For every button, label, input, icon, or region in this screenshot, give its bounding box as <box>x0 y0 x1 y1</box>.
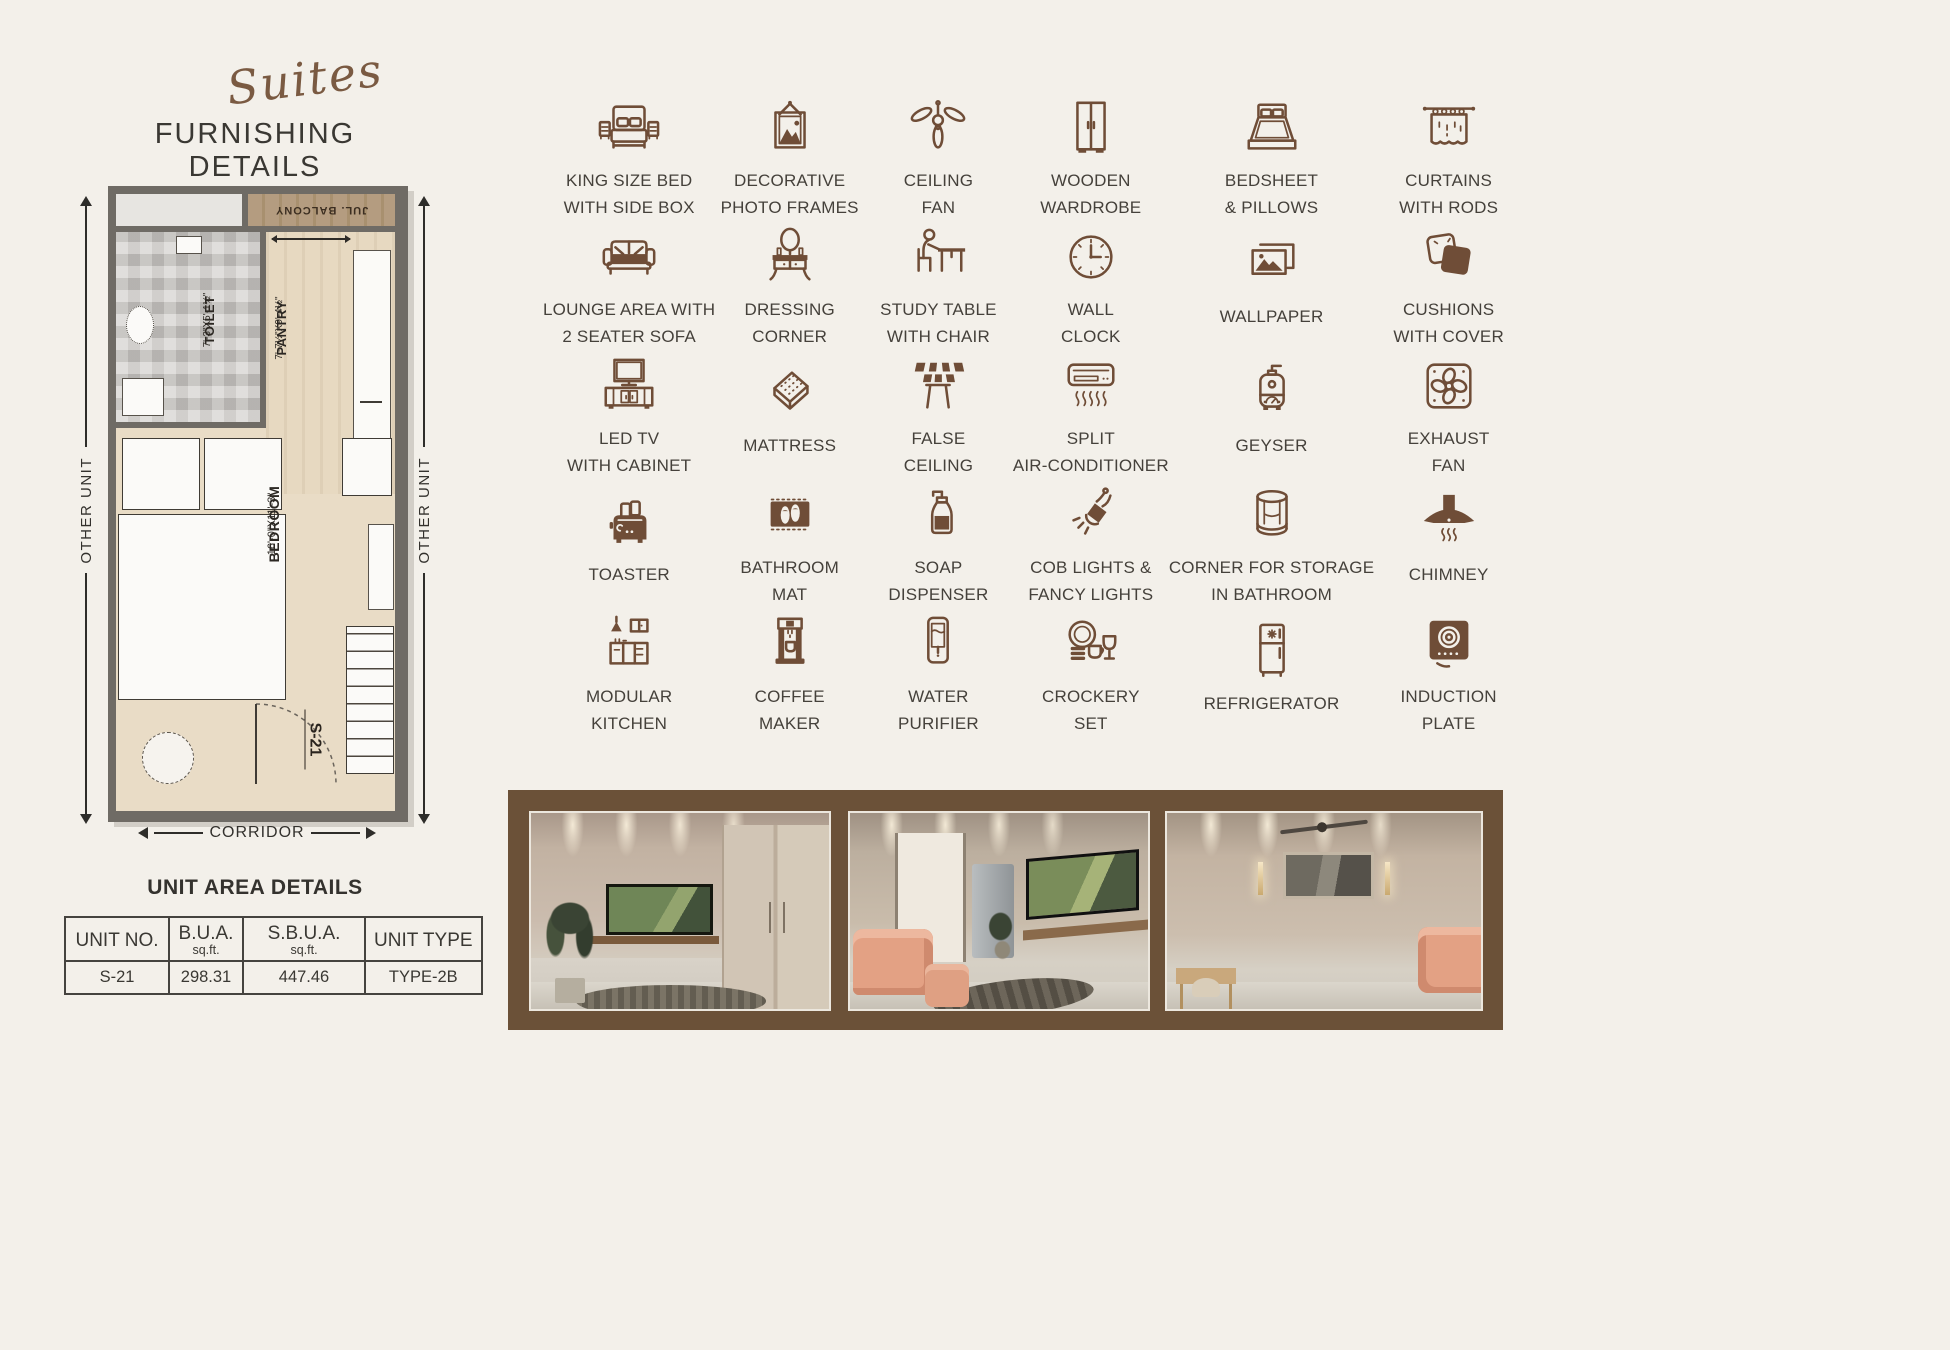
page-title: FURNISHING DETAILS <box>110 118 400 184</box>
item-modular-kitchen: MODULARKITCHEN <box>543 608 715 737</box>
item-label: CURTAINS <box>1399 168 1498 194</box>
arrow-right-icon <box>366 827 376 839</box>
bedsheet-pillows-icon <box>1241 92 1303 159</box>
item-cob-lights: COB LIGHTS &FANCY LIGHTS <box>1013 479 1169 608</box>
pantry-dimensions: 7'-7½"X9'-4½" <box>274 296 287 359</box>
item-label: FANCY LIGHTS <box>1028 582 1153 608</box>
chimney-icon <box>1418 479 1480 553</box>
item-label: FALSE <box>904 426 973 452</box>
photo-rug <box>576 985 767 1011</box>
neighbor-area <box>116 194 248 232</box>
item-lounge-sofa: LOUNGE AREA WITH2 SEATER SOFA <box>543 221 715 350</box>
table-data-row: S-21 298.31 447.46 TYPE-2B <box>65 961 482 994</box>
king-size-bed-icon <box>598 92 660 159</box>
interior-photo-3 <box>1165 811 1483 1011</box>
item-label: & PILLOWS <box>1225 195 1318 221</box>
photo-sofa-chair <box>925 964 970 1007</box>
bed-outline <box>118 514 286 700</box>
item-label: WATER <box>898 684 979 710</box>
item-bathroom-mat: BATHROOMMAT <box>715 479 864 608</box>
item-label: WALLPAPER <box>1220 304 1324 330</box>
item-label: DISPENSER <box>888 582 988 608</box>
item-label: CORNER <box>744 324 834 350</box>
item-label: WARDROBE <box>1040 195 1141 221</box>
photo-frames-icon <box>759 92 821 159</box>
item-refrigerator: REFRIGERATOR <box>1169 608 1374 737</box>
item-label: WITH CHAIR <box>880 324 997 350</box>
ceiling-fan-icon <box>907 92 969 159</box>
item-mattress: MATTRESS <box>715 350 864 479</box>
toilet-area: TOILET 7'-3"X5'-1½" <box>116 232 266 428</box>
item-label: CORNER FOR STORAGE <box>1169 555 1374 581</box>
unit-area-title: UNIT AREA DETAILS <box>110 876 400 900</box>
wardrobe-shelving <box>346 626 394 774</box>
item-label: PLATE <box>1400 711 1496 737</box>
left-dimension-arrow: OTHER UNIT <box>74 196 98 824</box>
wardrobe-icon <box>1060 92 1122 159</box>
round-table <box>142 732 194 784</box>
item-label: PHOTO FRAMES <box>721 195 859 221</box>
wallpaper-icon <box>1241 221 1303 295</box>
item-label: WITH SIDE BOX <box>564 195 695 221</box>
item-ceiling-fan: CEILINGFAN <box>864 92 1013 221</box>
modular-kitchen-icon <box>598 608 660 675</box>
cell-sbua: 447.46 <box>243 961 365 994</box>
photo-wall-sconce <box>1258 862 1263 895</box>
item-soap-dispenser: SOAPDISPENSER <box>864 479 1013 608</box>
wall-niche <box>368 524 394 610</box>
item-label: DECORATIVE <box>721 168 859 194</box>
item-wallpaper: WALLPAPER <box>1169 221 1374 350</box>
soap-dispenser-icon <box>907 479 969 546</box>
right-dimension-arrow: OTHER UNIT <box>412 196 436 824</box>
cell-unit-no: S-21 <box>65 961 169 994</box>
cob-lights-icon <box>1060 479 1122 546</box>
furnishing-icon-grid: KING SIZE BEDWITH SIDE BOX DECORATIVEPHO… <box>543 92 1523 737</box>
arrow-down-icon <box>80 814 92 824</box>
interior-photo-2 <box>848 811 1150 1011</box>
crockery-set-icon <box>1060 608 1122 675</box>
item-chimney: CHIMNEY <box>1374 479 1523 608</box>
item-label: GEYSER <box>1235 433 1307 459</box>
false-ceiling-icon <box>907 350 969 417</box>
item-label: MAT <box>740 582 839 608</box>
item-label: EXHAUST <box>1408 426 1490 452</box>
col-sbua: S.B.U.A. <box>268 923 341 944</box>
item-label: CUSHIONS <box>1393 297 1504 323</box>
interior-photo-strip <box>508 790 1503 1030</box>
item-wall-clock: WALLCLOCK <box>1013 221 1169 350</box>
cushions-icon <box>1418 221 1480 288</box>
cell-bua: 298.31 <box>169 961 243 994</box>
item-water-purifier: WATERPURIFIER <box>864 608 1013 737</box>
item-label: TOASTER <box>588 562 669 588</box>
bathroom-mat-icon <box>759 479 821 546</box>
pantry-dimension-arrow <box>272 238 350 240</box>
item-label: LOUNGE AREA WITH <box>543 297 715 323</box>
photo-wall-sconce <box>1385 862 1390 895</box>
wall-clock-icon <box>1060 221 1122 288</box>
unit-number-label: S-21 <box>305 710 324 770</box>
item-label: FAN <box>904 195 973 221</box>
item-label: COFFEE <box>755 684 825 710</box>
corridor-label: CORRIDOR <box>209 824 304 842</box>
photo-sofa <box>1418 927 1483 994</box>
balcony-label: JUL. BALCONY <box>275 204 368 216</box>
item-label: MAKER <box>755 711 825 737</box>
item-label: REFRIGERATOR <box>1204 691 1340 717</box>
photo-console <box>588 936 719 944</box>
item-label: LED TV <box>567 426 691 452</box>
item-label: IN BATHROOM <box>1169 582 1374 608</box>
pantry-counter <box>353 250 391 468</box>
corridor-dimension-arrow: CORRIDOR <box>138 824 376 842</box>
item-label: WALL <box>1061 297 1121 323</box>
item-label: CEILING <box>904 453 973 479</box>
photo-tv <box>606 884 713 935</box>
door-swing-arc <box>254 702 340 788</box>
item-label: STUDY TABLE <box>880 297 997 323</box>
item-label: BATHROOM <box>740 555 839 581</box>
item-king-size-bed: KING SIZE BEDWITH SIDE BOX <box>543 92 715 221</box>
col-bua: B.U.A. <box>179 923 234 944</box>
toilet-basin-fixture <box>122 378 164 416</box>
item-label: BEDSHEET <box>1225 168 1318 194</box>
bedroom-dimensions: 16'-0"X11'-3" <box>266 493 280 556</box>
arrow-left-icon <box>138 827 148 839</box>
refrigerator-icon <box>1241 608 1303 682</box>
bedside-box <box>342 438 392 496</box>
item-study-table: STUDY TABLEWITH CHAIR <box>864 221 1013 350</box>
item-label: SPLIT <box>1013 426 1169 452</box>
item-toaster: TOASTER <box>543 479 715 608</box>
curtains-icon <box>1418 92 1480 159</box>
item-dressing-corner: DRESSINGCORNER <box>715 221 864 350</box>
toilet-dimensions: 7'-3"X5'-1½" <box>202 293 215 348</box>
other-unit-label-right: OTHER UNIT <box>416 447 433 574</box>
item-label: PURIFIER <box>898 711 979 737</box>
item-induction-plate: INDUCTIONPLATE <box>1374 608 1523 737</box>
item-label: MODULAR <box>586 684 672 710</box>
item-coffee-maker: COFFEEMAKER <box>715 608 864 737</box>
item-label: SOAP <box>888 555 988 581</box>
toilet-wc-fixture <box>126 306 154 344</box>
item-label: WITH RODS <box>1399 195 1498 221</box>
item-label: WOODEN <box>1040 168 1141 194</box>
toilet-shelf <box>176 236 202 254</box>
item-label: CLOCK <box>1061 324 1121 350</box>
split-ac-icon <box>1060 350 1122 417</box>
item-label: FAN <box>1408 453 1490 479</box>
item-photo-frames: DECORATIVEPHOTO FRAMES <box>715 92 864 221</box>
item-cushions: CUSHIONSWITH COVER <box>1374 221 1523 350</box>
photo-chair <box>1192 978 1220 998</box>
bed-pillow-box <box>122 438 200 510</box>
unit-area-table: UNIT NO. B.U.A.sq.ft. S.B.U.A.sq.ft. UNI… <box>64 916 483 995</box>
item-corner-storage: CORNER FOR STORAGEIN BATHROOM <box>1169 479 1374 608</box>
floor-plan: JUL. BALCONY TOILET 7'-3"X5'-1½" PANTRY … <box>108 186 408 822</box>
sofa-icon <box>598 221 660 288</box>
col-unit-type: UNIT TYPE <box>374 930 473 951</box>
item-false-ceiling: FALSECEILING <box>864 350 1013 479</box>
led-tv-icon <box>598 350 660 417</box>
cell-unit-type: TYPE-2B <box>365 961 482 994</box>
item-label: KING SIZE BED <box>564 168 695 194</box>
item-label: DRESSING <box>744 297 834 323</box>
item-label: COB LIGHTS & <box>1028 555 1153 581</box>
interior-photo-1 <box>529 811 831 1011</box>
arrow-up-icon <box>418 196 430 206</box>
item-label: CROCKERY <box>1042 684 1140 710</box>
item-label: MATTRESS <box>743 433 836 459</box>
item-label: 2 SEATER SOFA <box>543 324 715 350</box>
item-bedsheet-pillows: BEDSHEET& PILLOWS <box>1169 92 1374 221</box>
corner-storage-icon <box>1241 479 1303 546</box>
item-label: WITH CABINET <box>567 453 691 479</box>
item-label: CEILING <box>904 168 973 194</box>
induction-plate-icon <box>1418 608 1480 675</box>
water-purifier-icon <box>907 608 969 675</box>
mattress-icon <box>759 350 821 424</box>
item-curtains: CURTAINSWITH RODS <box>1374 92 1523 221</box>
item-label: KITCHEN <box>586 711 672 737</box>
coffee-maker-icon <box>759 608 821 675</box>
brand-script-logo: Suites <box>188 38 423 120</box>
dressing-table-icon <box>759 221 821 288</box>
item-crockery-set: CROCKERYSET <box>1013 608 1169 737</box>
photo-wardrobe <box>722 825 829 1009</box>
other-unit-label-left: OTHER UNIT <box>78 447 95 574</box>
study-table-icon <box>907 221 969 288</box>
item-geyser: GEYSER <box>1169 350 1374 479</box>
balcony-area: JUL. BALCONY <box>248 194 395 232</box>
furnishing-details-page: Suites FURNISHING DETAILS OTHER UNIT JUL… <box>0 0 1950 1350</box>
item-label: CHIMNEY <box>1409 562 1489 588</box>
arrow-up-icon <box>80 196 92 206</box>
arrow-down-icon <box>418 814 430 824</box>
toaster-icon <box>598 479 660 553</box>
item-exhaust-fan: EXHAUSTFAN <box>1374 350 1523 479</box>
geyser-icon <box>1241 350 1303 424</box>
item-split-ac: SPLITAIR-CONDITIONER <box>1013 350 1169 479</box>
item-label: WITH COVER <box>1393 324 1504 350</box>
item-wardrobe: WOODENWARDROBE <box>1013 92 1169 221</box>
photo-tv <box>1026 849 1139 920</box>
col-unit-no: UNIT NO. <box>75 930 158 951</box>
exhaust-fan-icon <box>1418 350 1480 417</box>
photo-plant <box>537 891 603 981</box>
item-led-tv: LED TVWITH CABINET <box>543 350 715 479</box>
table-header-row: UNIT NO. B.U.A.sq.ft. S.B.U.A.sq.ft. UNI… <box>65 917 482 961</box>
photo-sofa <box>853 929 933 996</box>
item-label: INDUCTION <box>1400 684 1496 710</box>
item-label: AIR-CONDITIONER <box>1013 453 1169 479</box>
photo-wall-art <box>1283 852 1374 899</box>
item-label: SET <box>1042 711 1140 737</box>
photo-plant <box>981 903 1020 970</box>
